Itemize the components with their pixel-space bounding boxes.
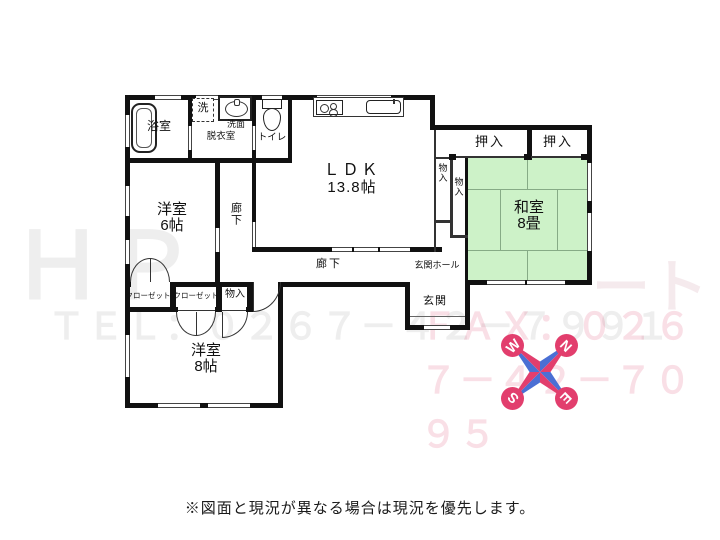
room-label-washitsu: 和室 8畳 [514,200,544,232]
tatami-line [468,189,587,190]
toilet-icon [262,99,282,131]
storage-door-arc [222,312,248,338]
label-closet-1: クローゼット [126,292,171,300]
room-label-toilet: トイレ [258,133,287,143]
wall [465,285,470,330]
compass-north-label: N [557,336,575,354]
wall [405,285,410,330]
room-label-yoshitsu6: 洋室 6帖 [157,202,187,234]
label-oshiire-2: 押入 [543,135,573,149]
closet-sill-line [178,310,215,311]
wall [587,125,592,285]
wall [524,154,531,160]
yoshitsu6-size: 6帖 [160,217,183,234]
fusuma-line [452,156,587,158]
window [587,163,592,201]
ldk-name: ＬＤＫ [323,162,380,179]
door-opening [215,228,220,252]
closet-door-arc [130,258,150,282]
floor-plan: ＬＤＫ 13.8帖 和室 8畳 洋室 6帖 洋室 8帖 浴室 脱衣室 洗面 洗 … [0,0,720,540]
window [125,186,130,216]
label-oshiire-1: 押入 [475,135,505,149]
kitchen-sink-icon [366,100,401,114]
wall [215,163,220,282]
wall [449,154,456,160]
window [158,403,200,408]
window [155,95,181,100]
window [125,115,130,147]
label-entrance-hall: 玄関ホール [414,261,459,270]
label-corridor-horizontal: 廊下 [316,259,342,271]
door-opening [188,126,192,150]
yoshitsu8-size: 8帖 [194,358,217,375]
wall [170,282,253,287]
tatami-line [500,190,501,251]
wall [450,158,453,237]
wall [465,158,468,285]
window [125,335,130,377]
wall [288,95,292,158]
room-door-arc [253,282,281,312]
entrance-door-mark [424,325,450,330]
label-washbasin: 洗面 [227,120,245,129]
tatami-line [527,158,528,189]
ldk-size: 13.8帖 [327,179,376,196]
room-label-yoshitsu8: 洋室 8帖 [191,343,221,375]
washitsu-name: 和室 [514,199,544,216]
label-monoire-side-2: 物入 [453,177,462,197]
compass-south-label: S [504,390,522,408]
entrance-step-line [410,316,465,317]
window-tick [378,247,380,252]
door-panel [253,282,254,312]
wall [434,220,453,223]
wall [430,125,592,130]
washitsu-size: 8畳 [517,215,540,232]
room-label-bath: 浴室 [147,120,171,133]
yoshitsu6-name: 洋室 [157,201,187,218]
label-corridor-vertical: 廊下 [229,202,241,226]
window [587,213,592,251]
window [125,240,130,264]
compass-east-label: E [558,390,576,408]
door-panel [150,258,151,282]
label-monoire-hall: 物入 [225,290,245,301]
tatami-line [557,190,558,251]
compass-rose: W N S E [495,326,585,418]
door-panel [196,312,197,336]
label-closet-2: クローゼット [174,292,219,300]
label-monoire-side-1: 物入 [437,163,446,183]
stove-icon [316,100,343,115]
wall [283,282,410,287]
room-label-ldk: ＬＤＫ 13.8帖 [323,163,380,197]
floor-plan-page: ＨＰ ート ＴＥＬ：０２６７－４２－７９９１ ＦＡＸ：０２６７－４２－７０９５ [0,0,720,540]
wall [434,130,436,252]
label-entrance: 玄関 [423,296,447,308]
door-opening [252,222,256,247]
wall [278,282,283,408]
window [332,247,410,252]
room-label-dressing: 脱衣室 [207,132,236,142]
wall [125,158,292,163]
window [208,403,250,408]
wall [125,403,283,408]
window-tick [525,280,527,285]
closet-sill-line [222,310,246,311]
closet-door-arc [176,312,196,336]
door-panel [222,312,223,338]
wall [581,154,588,160]
disclaimer-text: ※図面と現況が異なる場合は現況を優先します。 [185,497,536,518]
label-laundry: 洗 [198,103,209,115]
door-opening [252,126,256,150]
washbasin-icon [218,96,252,121]
wall [450,235,468,238]
wall [125,307,175,312]
window-tick [352,247,354,252]
compass-west-label: W [502,335,523,356]
closet-door-arc [196,312,216,336]
tatami-line [527,251,528,281]
closet-door-arc [150,258,170,282]
yoshitsu8-name: 洋室 [191,342,221,359]
